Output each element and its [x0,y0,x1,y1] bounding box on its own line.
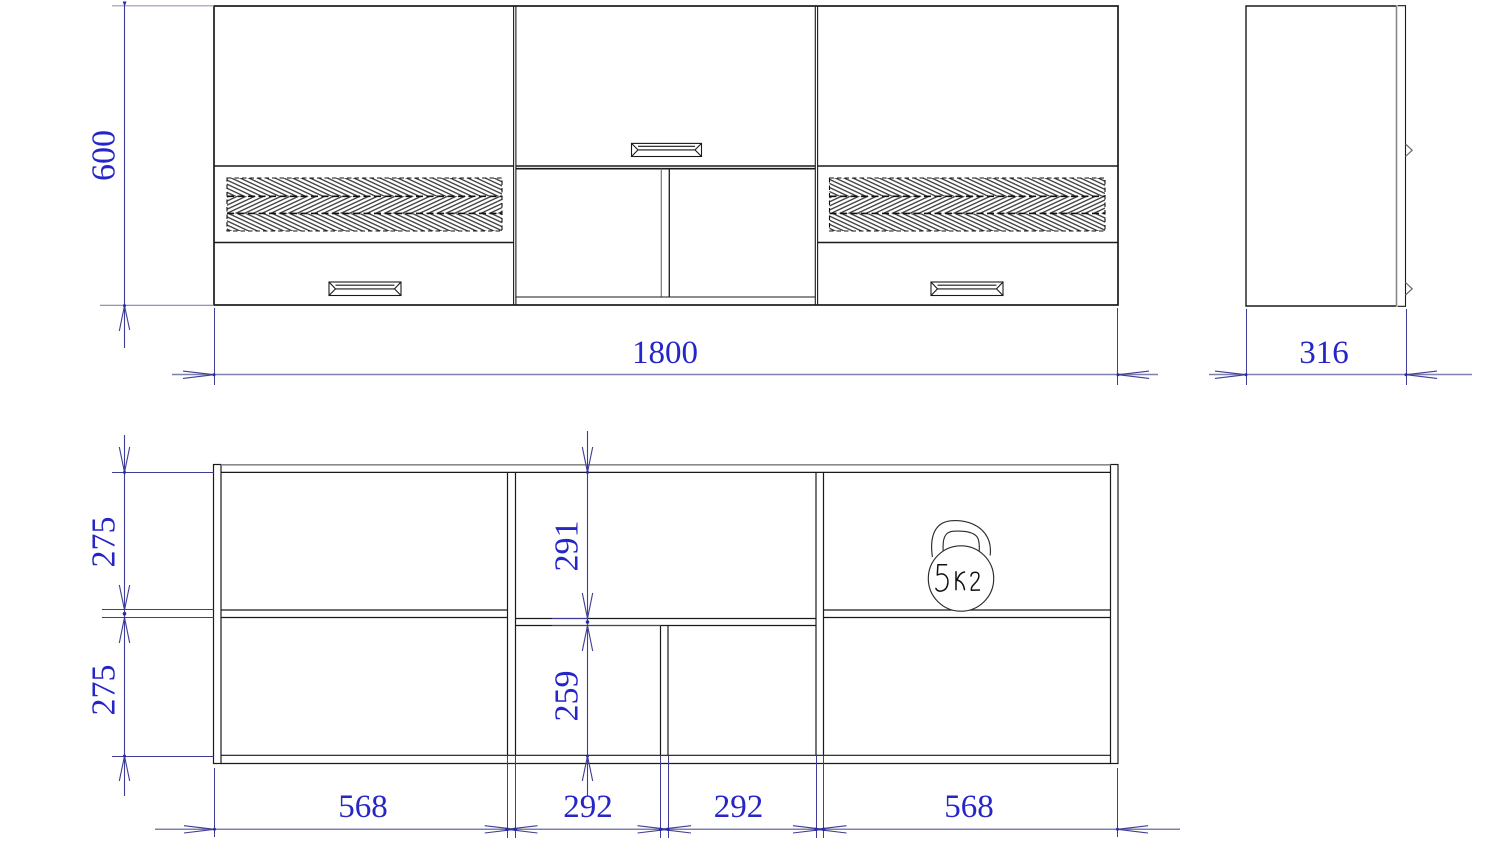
svg-text:275: 275 [86,517,123,568]
svg-text:275: 275 [86,665,123,716]
svg-text:600: 600 [86,130,123,181]
svg-text:1800: 1800 [632,335,698,371]
svg-text:259: 259 [549,671,586,722]
svg-text:291: 291 [549,521,586,572]
svg-text:568: 568 [338,789,388,825]
svg-text:568: 568 [944,789,994,825]
svg-text:292: 292 [714,789,764,825]
svg-text:292: 292 [563,789,613,825]
svg-text:316: 316 [1299,335,1349,371]
